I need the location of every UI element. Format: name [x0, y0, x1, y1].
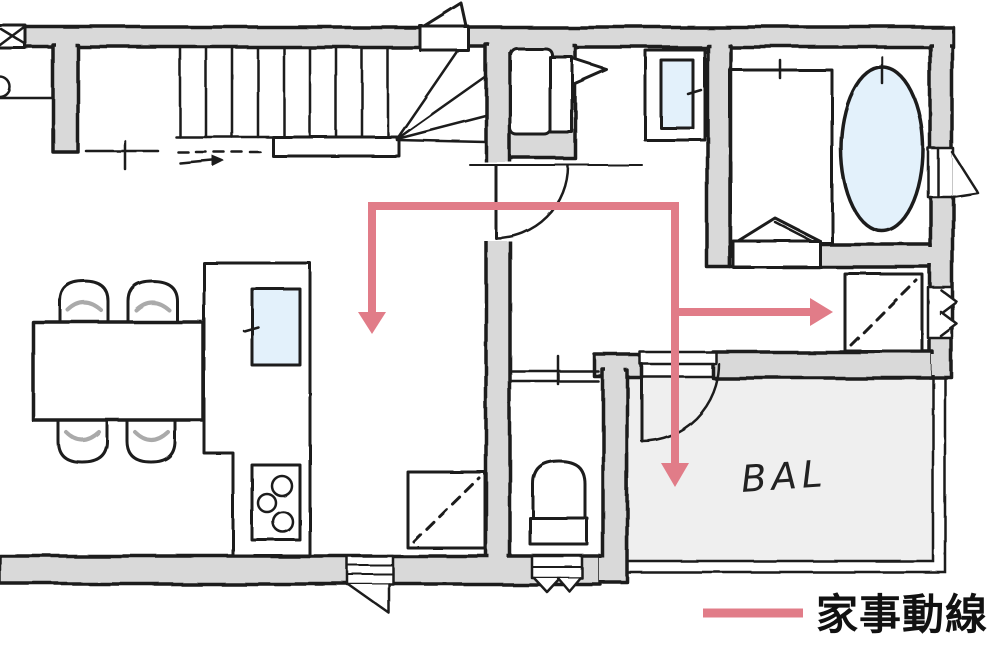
bathtub — [841, 67, 923, 231]
stair-up-arrow — [180, 155, 224, 166]
wall-niche — [510, 48, 552, 135]
staircase — [86, 48, 486, 169]
wall-bottom — [0, 556, 600, 584]
hall-door — [470, 165, 642, 238]
stair-landing — [273, 137, 399, 156]
wall-entry-stub — [53, 45, 78, 152]
wall-bath-left — [707, 45, 730, 267]
wall-balcony-top — [713, 352, 933, 378]
legend: 家事動線 — [703, 591, 988, 638]
kitchen-back-door — [347, 556, 393, 613]
bath-window — [928, 148, 978, 197]
floor-plan-page: BAL 家事動線 — [0, 0, 1000, 650]
refrigerator-symbol — [408, 472, 485, 548]
stove — [252, 465, 300, 540]
dining-table — [33, 322, 203, 420]
washbasin — [645, 50, 705, 140]
balcony-label: BAL — [740, 452, 829, 501]
laundry-window — [928, 287, 957, 338]
washroom-door — [550, 57, 606, 132]
flow-arrow-right — [810, 298, 833, 326]
legend-label: 家事動線 — [816, 591, 988, 638]
entry-step-line — [86, 141, 158, 169]
toilet — [530, 461, 587, 544]
bath-entry-step — [733, 218, 820, 267]
floor-plan-svg: BAL 家事動線 — [0, 0, 1000, 650]
entry-knob — [0, 77, 10, 97]
dining-set — [33, 281, 203, 462]
door-gap — [482, 162, 514, 241]
shower-area — [730, 70, 832, 243]
wall-center-vertical — [486, 45, 510, 557]
stair-top-window — [420, 3, 468, 50]
stair-winder — [397, 50, 486, 142]
kitchen-counter — [204, 263, 310, 556]
toilet-window — [532, 556, 582, 592]
wall-toilet-right — [603, 370, 627, 582]
flow-arrow-down-left — [358, 312, 386, 334]
